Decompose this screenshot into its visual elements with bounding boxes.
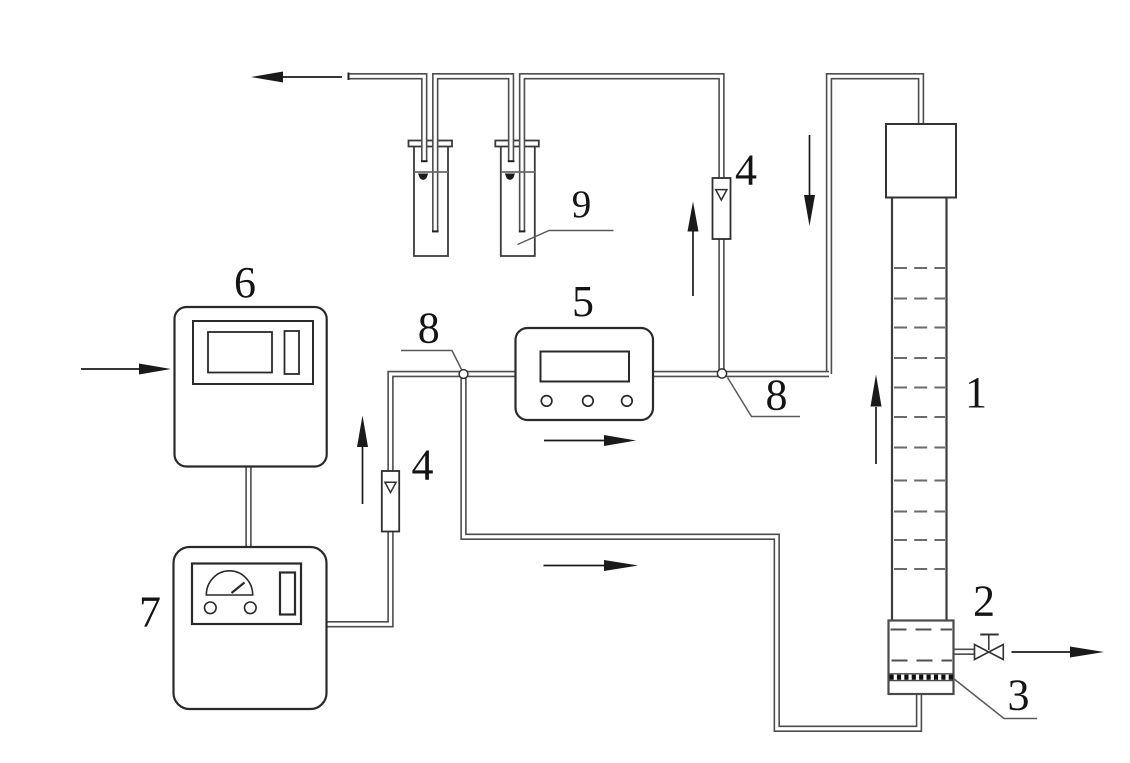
svg-text:2: 2 xyxy=(973,577,995,626)
svg-text:1: 1 xyxy=(965,368,987,417)
svg-text:4: 4 xyxy=(412,441,434,490)
svg-text:6: 6 xyxy=(234,258,256,307)
svg-text:5: 5 xyxy=(572,277,594,326)
svg-text:8: 8 xyxy=(766,371,788,420)
svg-text:9: 9 xyxy=(572,183,592,226)
svg-text:4: 4 xyxy=(735,146,757,195)
svg-text:8: 8 xyxy=(418,304,440,353)
svg-text:3: 3 xyxy=(1008,671,1030,720)
svg-text:7: 7 xyxy=(139,588,161,637)
